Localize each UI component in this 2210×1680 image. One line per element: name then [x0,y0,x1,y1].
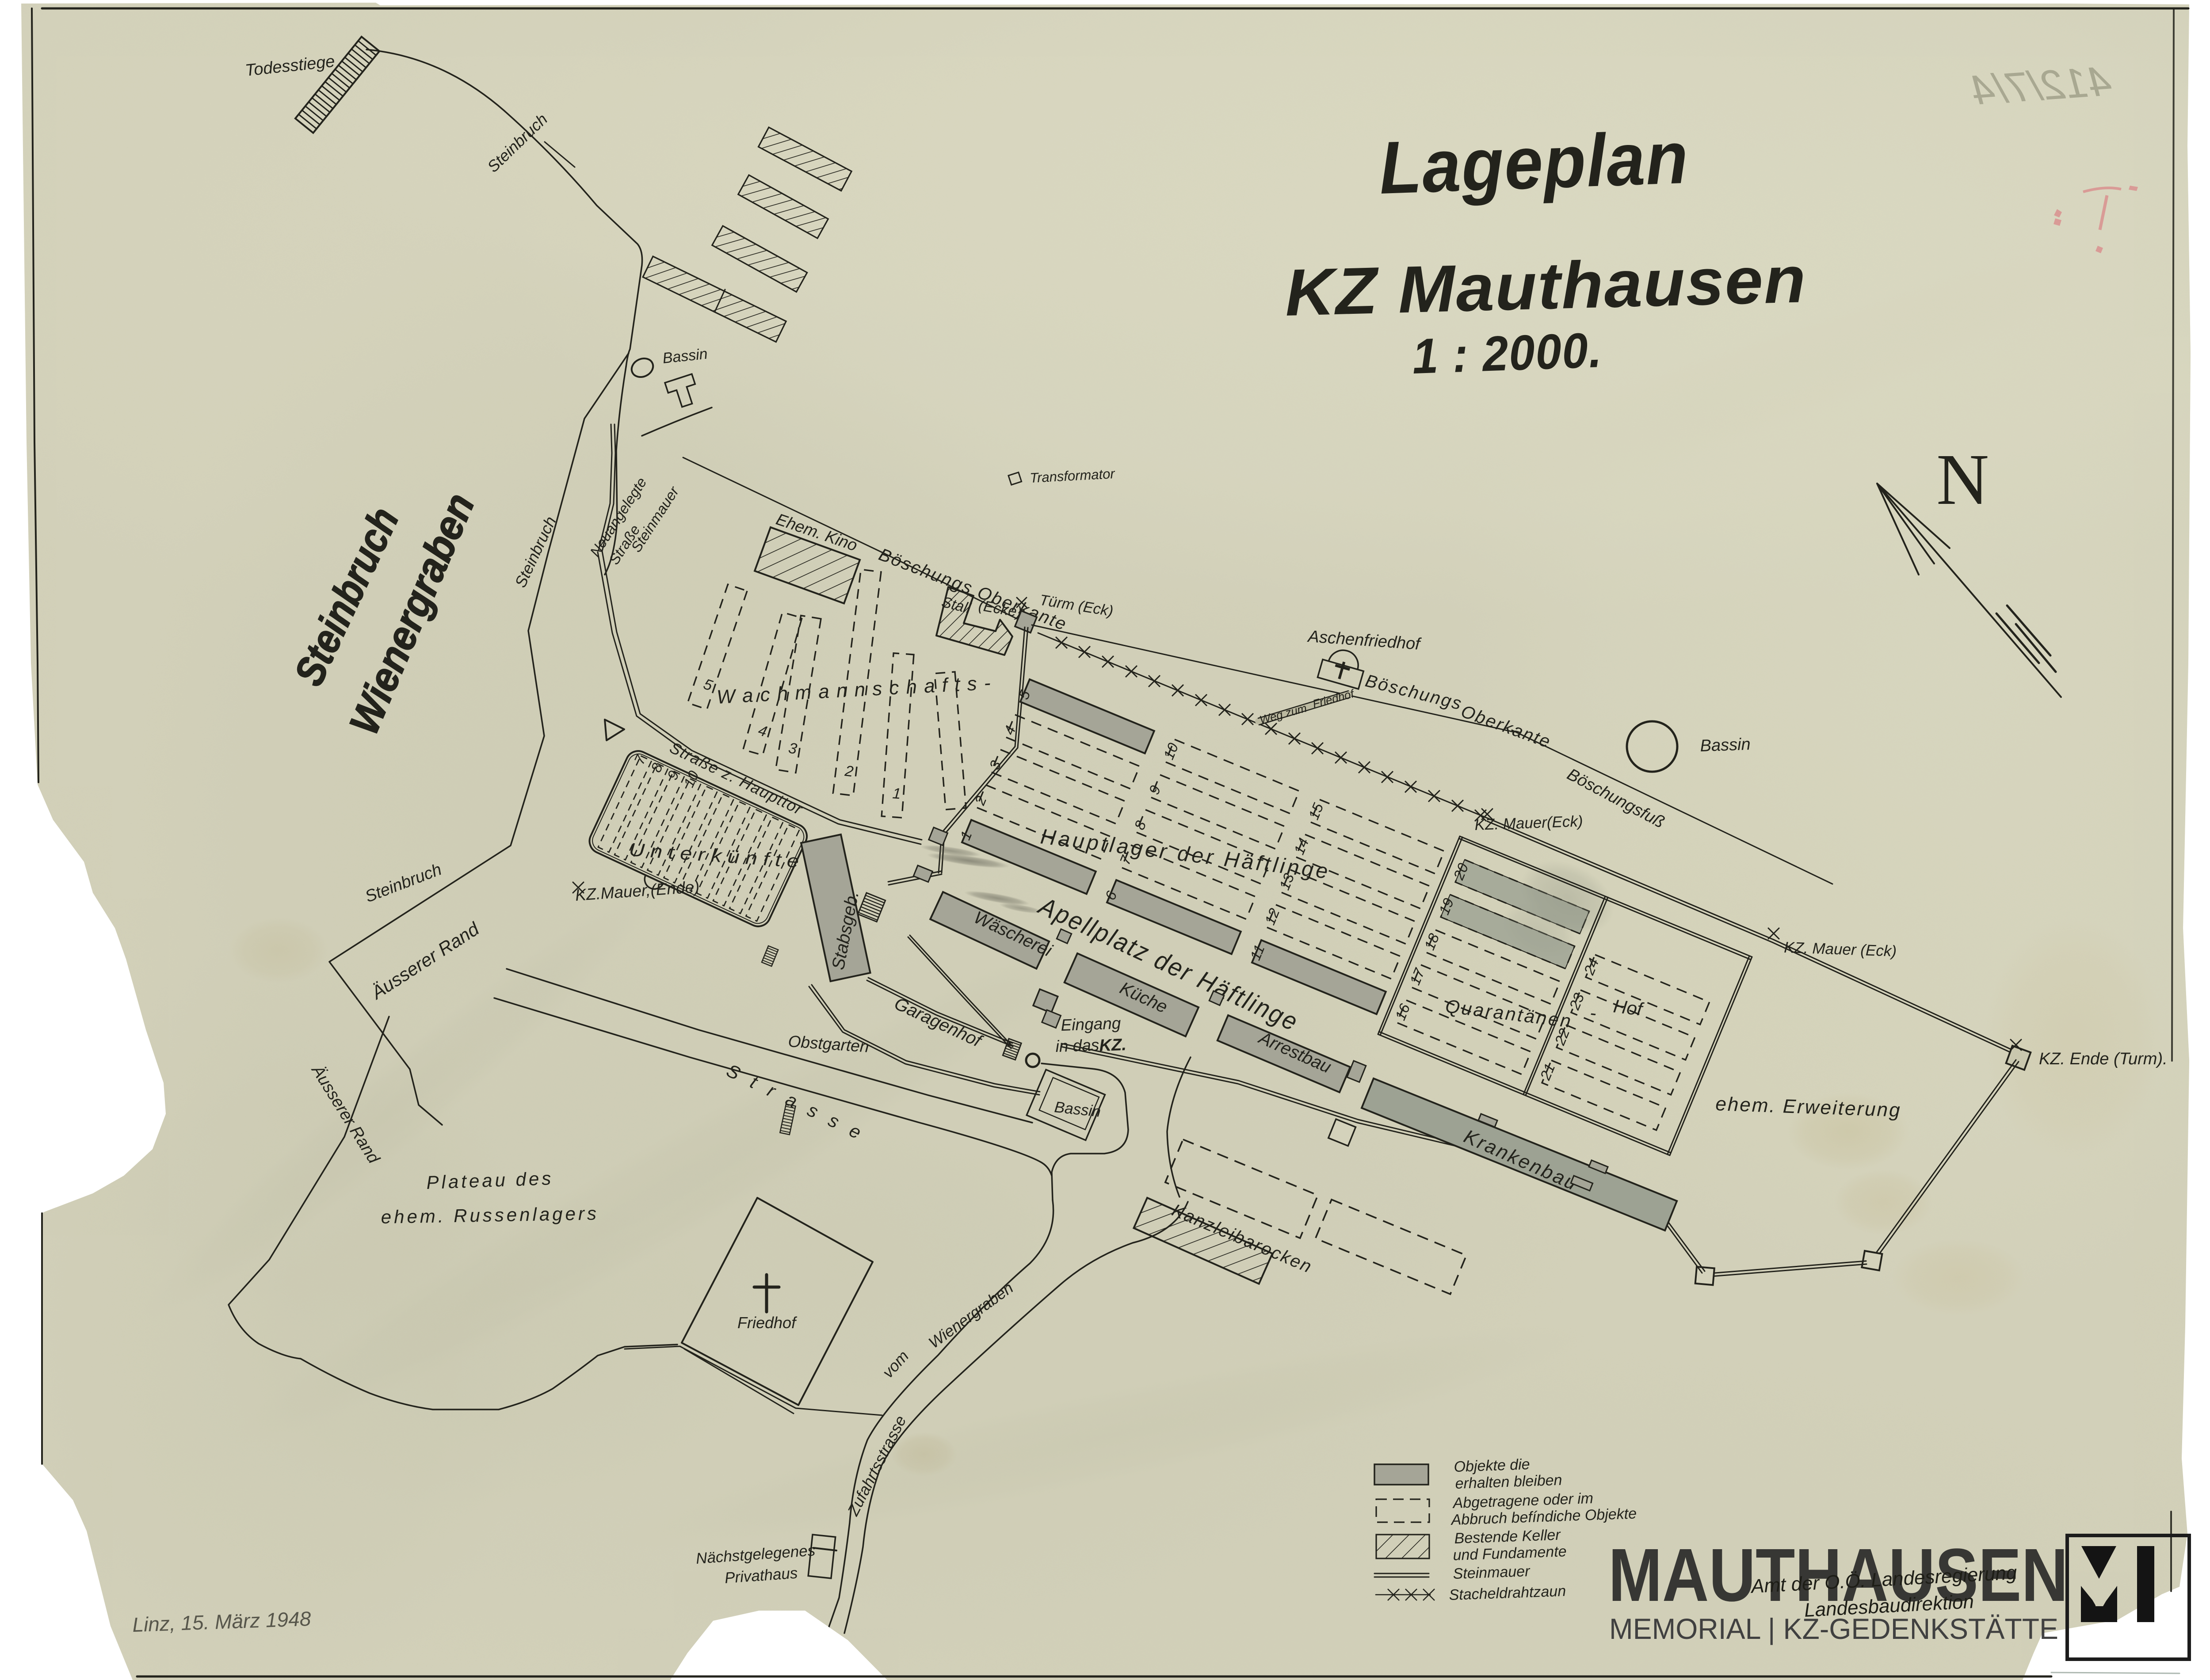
svg-text:KZ. Ende (Turm).: KZ. Ende (Turm). [2039,1050,2168,1068]
svg-text:1 : 2000.: 1 : 2000. [1411,322,1603,384]
svg-text:Steinmauer: Steinmauer [1453,1563,1531,1582]
svg-text:Hof: Hof [1612,995,1645,1020]
svg-text:412/7/4: 412/7/4 [1970,57,2113,114]
svg-text:in das: in das [1055,1036,1099,1055]
svg-text:N: N [1936,439,1989,520]
svg-text:KZ Mauthausen: KZ Mauthausen [1284,242,1807,330]
svg-text:Lageplan: Lageplan [1378,116,1690,210]
svg-text:Plateau des: Plateau des [426,1168,554,1193]
svg-text:KZ.: KZ. [1099,1036,1127,1055]
svg-text:1: 1 [892,785,901,802]
svg-text:ehem. Russenlagers: ehem. Russenlagers [381,1203,599,1227]
svg-text:Objekte die: Objekte die [1454,1456,1530,1475]
svg-text:Friedhof: Friedhof [737,1314,798,1332]
svg-text:Eingang: Eingang [1061,1014,1122,1034]
svg-text:Bassin: Bassin [1700,735,1751,755]
